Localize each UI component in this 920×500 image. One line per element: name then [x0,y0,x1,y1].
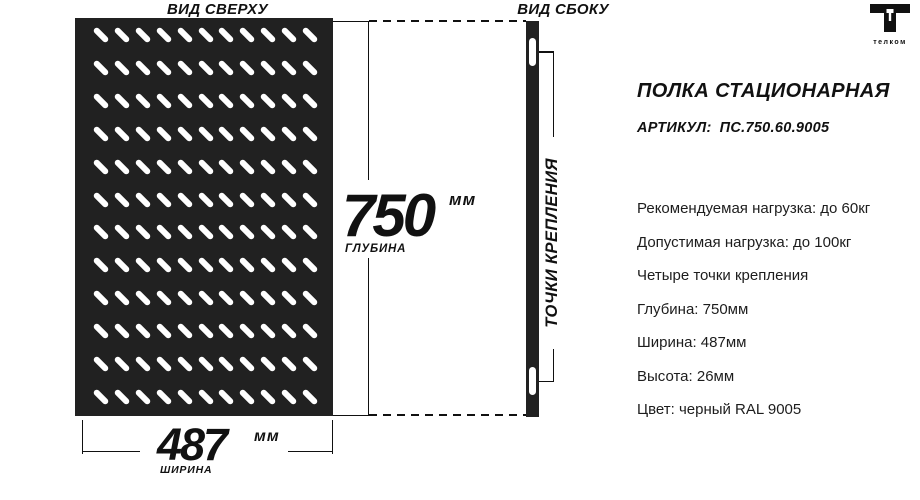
perforation-slot [113,257,130,274]
perforation-slot [134,125,151,142]
perforation-slot [113,388,130,405]
perforation-slot [302,323,319,340]
perforation-slot [93,257,110,274]
perforation-slot [239,290,256,307]
perforation-slot [197,290,214,307]
perforation-slot [218,257,235,274]
perforation-slot [260,191,277,208]
perforation-slot [176,224,193,241]
perforation-slot [302,158,319,175]
perforation-slot [218,388,235,405]
perforation-slot [93,59,110,76]
perforation-slot [176,27,193,44]
perforation-slot [302,191,319,208]
perforation-slot [239,388,256,405]
perforation-slot [281,59,298,76]
perforation-slot [155,388,172,405]
perforation-slot [134,388,151,405]
perforation-slot [239,224,256,241]
perforation-slot [197,158,214,175]
perforation-slot [302,257,319,274]
perforation-slot [93,224,110,241]
spec-item: Цвет: черный RAL 9005 [637,401,912,419]
product-title: ПОЛКА СТАЦИОНАРНАЯ [637,80,907,103]
perforation-slot [155,125,172,142]
perforation-slot [155,27,172,44]
perforation-slot [155,158,172,175]
perforation-slot [155,257,172,274]
article-label: АРТИКУЛ: [637,120,712,136]
top-view-panel [75,18,333,416]
perforation-slot [113,323,130,340]
perforation-slot [197,224,214,241]
perforation-slot [260,158,277,175]
perforation-slot [176,290,193,307]
projection-dash-top [369,20,526,22]
perforation-slot [197,257,214,274]
perforation-slot [197,125,214,142]
mounting-bracket-upper-line [553,51,555,137]
perforation-slot [197,27,214,44]
depth-dim-tick-top [333,21,369,23]
perforation-slot [176,125,193,142]
perforation-slot [134,323,151,340]
perforation-slot [218,356,235,373]
article-line: АРТИКУЛ:ПС.750.60.9005 [637,120,907,136]
perforation-slot [155,323,172,340]
width-unit: мм [254,428,280,446]
perforation-slot [260,257,277,274]
perforation-slot [197,356,214,373]
perforation-slot [260,27,277,44]
perforation-slot [281,125,298,142]
side-view-bar [526,21,539,417]
perforation-slot [302,59,319,76]
perforation-slot [93,388,110,405]
perforation-slot [281,158,298,175]
perforation-slot [281,257,298,274]
perforation-slot [302,92,319,109]
perforation-slot [218,323,235,340]
perforation-slot [239,27,256,44]
perforation-slot [93,323,110,340]
perforation-slot [302,388,319,405]
perforation-slot [113,92,130,109]
perforation-slot [239,125,256,142]
perforation-slot [93,27,110,44]
perforation-slot [218,224,235,241]
perforation-slot [93,191,110,208]
perforation-slot [239,158,256,175]
perforation-slot [176,158,193,175]
perforation-slot [197,323,214,340]
perforation-slot [134,92,151,109]
width-dim-line-left [82,451,140,453]
telcom-logo-icon [867,3,913,33]
perforation-slot [93,356,110,373]
perforation-slot [176,59,193,76]
perforation-slot [281,290,298,307]
perforation-slot [218,27,235,44]
perforation-slot [302,356,319,373]
perforation-slot [239,92,256,109]
mounting-slot-bottom [529,367,536,395]
spec-item: Высота: 26мм [637,368,912,386]
perforation-slot [176,92,193,109]
perforation-slot [155,224,172,241]
perforation-slot [93,92,110,109]
perforation-slot [134,59,151,76]
perforation-slot [302,290,319,307]
perforation-slot [260,59,277,76]
width-value: 487 [157,422,226,467]
depth-unit: мм [449,190,476,210]
perforation-slot [113,356,130,373]
perforation-slot [260,323,277,340]
perforation-slot [281,27,298,44]
perforation-slot [281,191,298,208]
spec-item: Четыре точки крепления [637,267,912,285]
perforation-slot [176,388,193,405]
perforation-slot [93,290,110,307]
perforation-slot [239,257,256,274]
perforation-slot [239,323,256,340]
perforation-slot [134,191,151,208]
perforation-slot [155,59,172,76]
spec-list: Рекомендуемая нагрузка: до 60кгДопустима… [637,200,912,435]
width-dim-tick-right [332,420,334,454]
perforation-slot [134,290,151,307]
perforation-slot [218,92,235,109]
perforation-slot [113,290,130,307]
depth-dim-tick-bottom [333,415,369,417]
perforation-slot [260,92,277,109]
spec-item: Рекомендуемая нагрузка: до 60кг [637,200,912,218]
perforation-slot [281,323,298,340]
perforation-slot [197,388,214,405]
side-view-title: ВИД СБОКУ [513,1,613,18]
perforation-slot [260,356,277,373]
perforation-slot [281,224,298,241]
depth-dim-line-upper [368,21,370,180]
spec-item: Ширина: 487мм [637,334,912,352]
brand-logo: телком [866,3,914,46]
perforation-slot [176,323,193,340]
perforation-slot [260,125,277,142]
perforation-slot [134,356,151,373]
mounting-points-label: ТОЧКИ КРЕПЛЕНИЯ [543,136,563,350]
perforation-slot [239,191,256,208]
perforation-slot [197,191,214,208]
perforation-slot [155,356,172,373]
perforation-slot [176,356,193,373]
perforation-slot [239,59,256,76]
width-dim-line-right [288,451,332,453]
perforation-slot [155,92,172,109]
perforation-slot [281,356,298,373]
perforation-slot [302,27,319,44]
depth-value: 750 [342,186,433,246]
article-value: ПС.750.60.9005 [720,120,830,136]
projection-dash-bottom [369,414,526,416]
mounting-bracket-bottom-arm [539,381,554,383]
perforation-slot [113,158,130,175]
width-dim-tick-left [82,420,84,454]
perforation-slot [93,158,110,175]
depth-dim-line-lower [368,258,370,415]
perforation-slot [281,92,298,109]
perforation-slot [302,224,319,241]
perforation-slot [281,388,298,405]
perforation-slot [113,27,130,44]
perforation-slot [260,388,277,405]
perforation-slot [134,158,151,175]
spec-item: Глубина: 750мм [637,301,912,319]
perforation-slot [155,191,172,208]
perforation-slot [113,59,130,76]
perforation-slot [134,257,151,274]
perforation-slot [218,59,235,76]
perforation-slot [197,59,214,76]
perforation-slot [260,290,277,307]
perforation-slot [239,356,256,373]
perforation-slot [260,224,277,241]
perforation-slot [113,224,130,241]
perforation-slot [218,158,235,175]
perforation-slot [93,125,110,142]
perforation-slot [197,92,214,109]
brand-name: телком [866,39,914,46]
perforation-slot [134,224,151,241]
perforation-slot [176,191,193,208]
depth-caption: ГЛУБИНА [345,243,406,255]
top-view-title: ВИД СВЕРХУ [150,1,285,18]
mounting-bracket-lower-line [553,349,555,382]
perforation-slot [218,191,235,208]
width-caption: ШИРИНА [160,464,212,476]
perforation-slot [113,125,130,142]
perforation-slot [302,125,319,142]
perforation-slot [176,257,193,274]
perforation-slot [113,191,130,208]
spec-item: Допустимая нагрузка: до 100кг [637,234,912,252]
perforation-slot [134,27,151,44]
perforation-slot [218,290,235,307]
perforation-slot [218,125,235,142]
mounting-slot-top [529,38,536,66]
perforation-slot [155,290,172,307]
datasheet-page: ВИД СВЕРХУ ВИД СБОКУ 750 мм ГЛУБИНА ТОЧК… [0,0,920,500]
